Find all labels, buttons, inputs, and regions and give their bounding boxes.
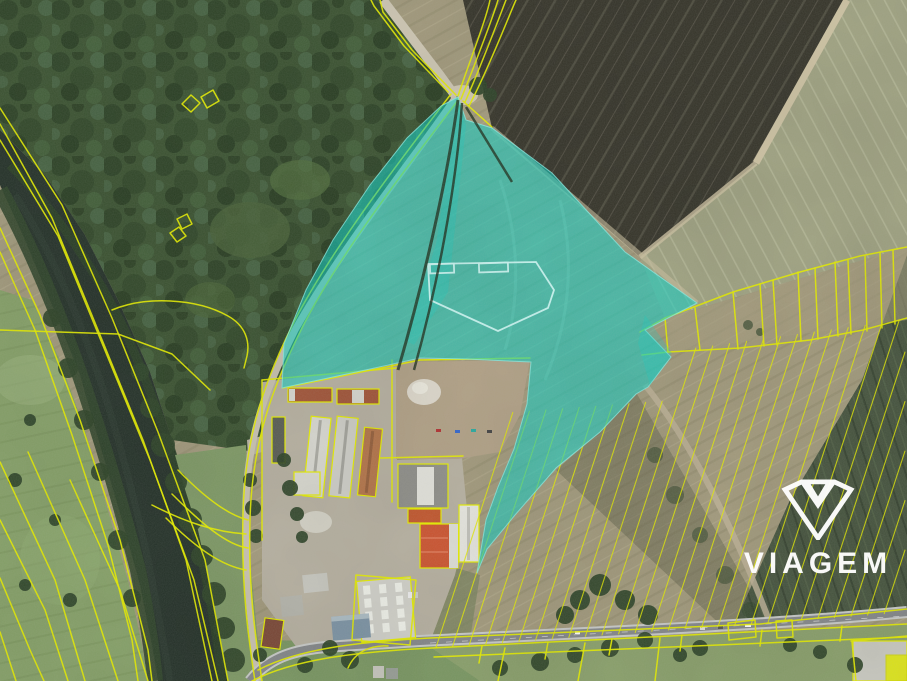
aerial-cadastral-map-image[interactable]: VIAGEM xyxy=(0,0,907,681)
aerial-photo-canvas xyxy=(0,0,907,681)
